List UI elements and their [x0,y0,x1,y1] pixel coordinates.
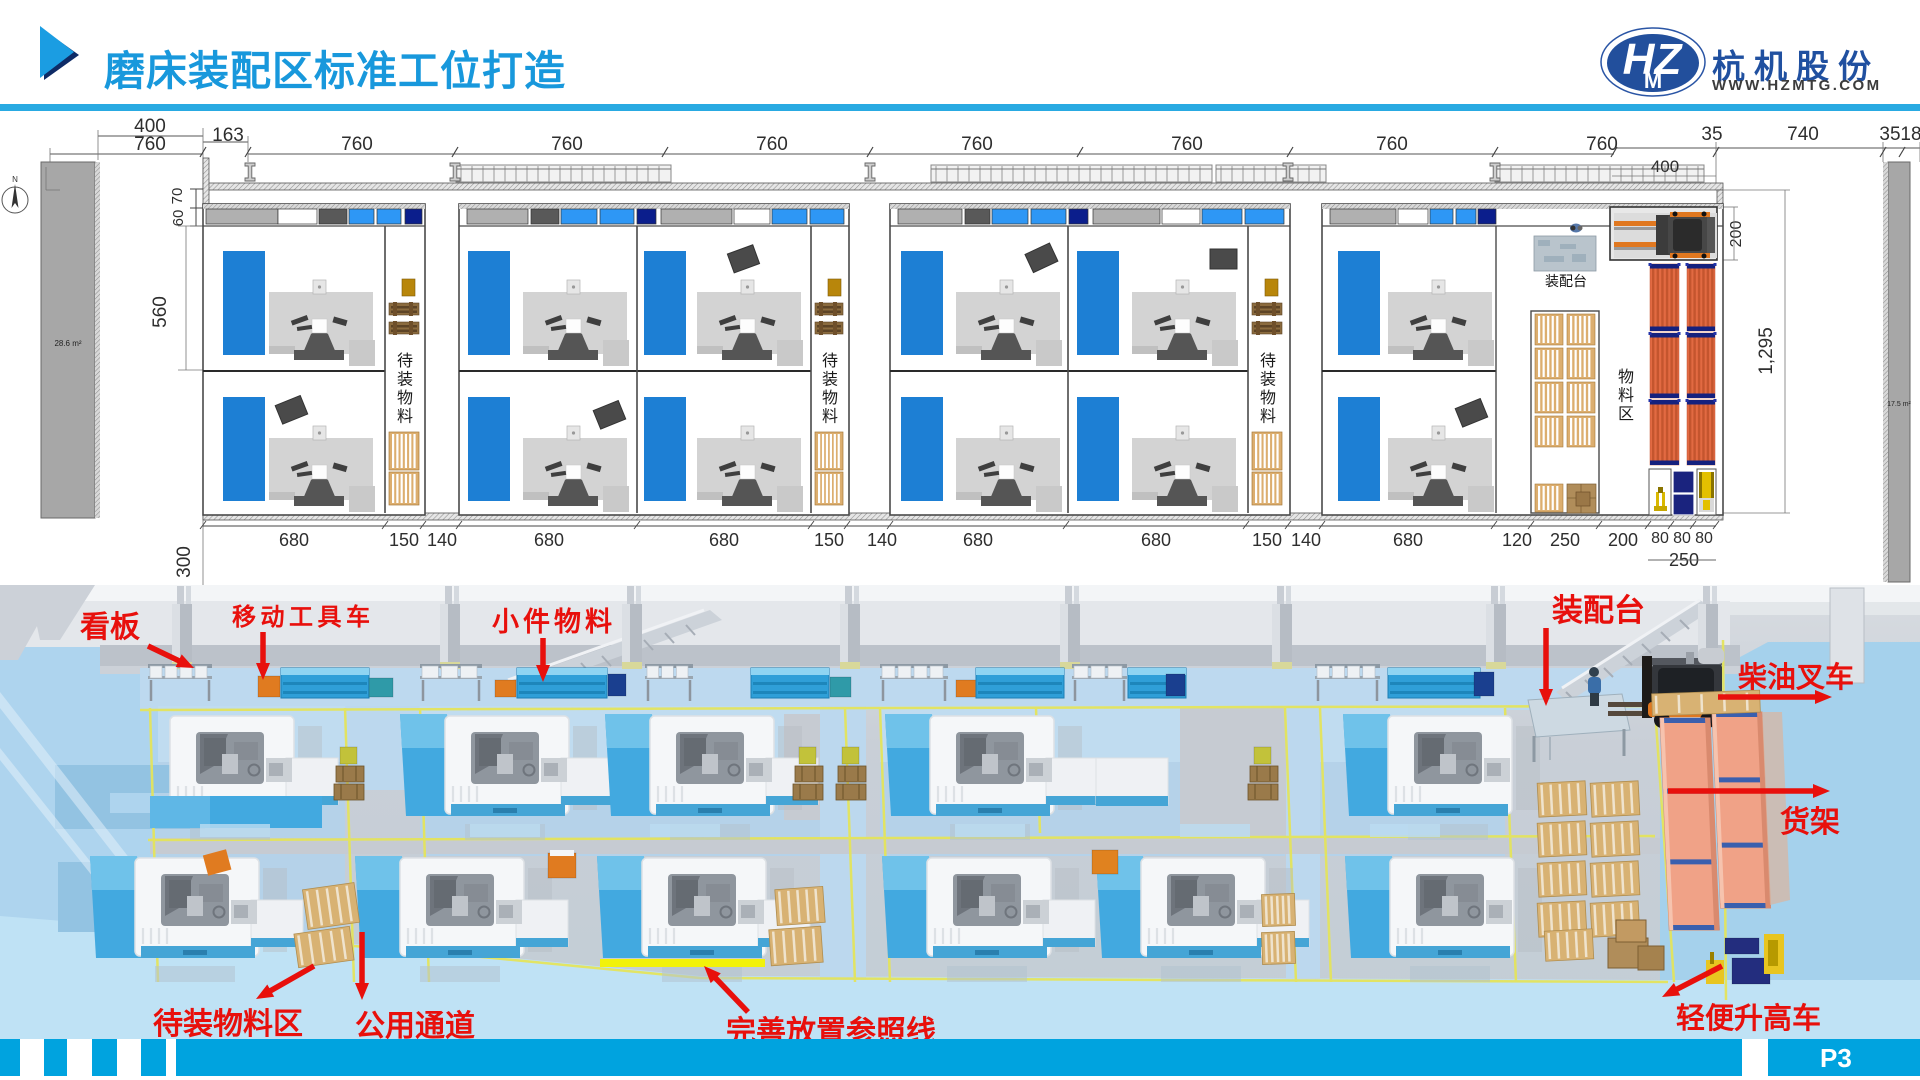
svg-text:760: 760 [961,134,993,155]
svg-text:680: 680 [1393,530,1423,550]
svg-text:待: 待 [1260,352,1276,370]
svg-text:物: 物 [1260,389,1276,407]
svg-text:80: 80 [1695,530,1713,547]
svg-text:物: 物 [1618,368,1634,386]
svg-text:680: 680 [534,530,564,550]
svg-text:140: 140 [1291,530,1321,550]
svg-text:140: 140 [427,530,457,550]
svg-text:200: 200 [1608,530,1638,550]
svg-text:物: 物 [822,389,838,407]
svg-text:轻便升高车: 轻便升高车 [1676,1001,1821,1035]
svg-text:N: N [12,175,18,184]
svg-text:料: 料 [397,408,413,426]
svg-text:740: 740 [1787,124,1819,145]
svg-text:35: 35 [1879,124,1900,145]
svg-text:560: 560 [150,296,171,328]
svg-text:装: 装 [397,371,413,389]
svg-text:装: 装 [822,371,838,389]
svg-text:760: 760 [1376,134,1408,155]
svg-text:60: 60 [170,210,187,227]
svg-text:装配台: 装配台 [1552,593,1645,628]
svg-text:760: 760 [1586,134,1618,155]
svg-text:28.6 m²: 28.6 m² [54,339,81,348]
svg-text:760: 760 [551,134,583,155]
svg-text:150: 150 [389,530,419,550]
svg-text:料: 料 [1260,408,1276,426]
svg-text:70: 70 [169,188,186,205]
svg-text:35: 35 [1701,124,1722,145]
svg-text:小件物料: 小件物料 [492,607,616,637]
svg-text:待装物料区: 待装物料区 [153,1008,303,1041]
svg-text:移动工具车: 移动工具车 [232,603,375,631]
svg-text:760: 760 [341,134,373,155]
svg-text:400: 400 [1651,157,1679,176]
svg-text:300: 300 [174,546,195,578]
svg-text:料: 料 [822,408,838,426]
svg-text:680: 680 [963,530,993,550]
svg-text:163: 163 [212,125,244,146]
svg-text:柴油叉车: 柴油叉车 [1738,660,1854,694]
svg-text:装: 装 [1260,371,1276,389]
svg-text:140: 140 [867,530,897,550]
svg-text:待: 待 [822,352,838,370]
svg-text:760: 760 [1171,134,1203,155]
svg-text:待: 待 [397,352,413,370]
svg-text:200: 200 [1728,221,1745,248]
svg-text:80: 80 [1651,530,1669,547]
svg-text:料: 料 [1618,387,1634,405]
svg-text:18: 18 [1900,124,1920,145]
svg-text:物: 物 [397,389,413,407]
svg-text:看板: 看板 [80,611,140,644]
svg-text:680: 680 [1141,530,1171,550]
svg-text:80: 80 [1673,530,1691,547]
svg-text:区: 区 [1618,406,1634,423]
svg-text:250: 250 [1550,530,1580,550]
svg-text:680: 680 [279,530,309,550]
svg-text:1,295: 1,295 [1756,327,1777,375]
svg-text:150: 150 [1252,530,1282,550]
svg-text:装配台: 装配台 [1545,273,1587,289]
svg-text:680: 680 [709,530,739,550]
svg-text:760: 760 [134,134,166,155]
svg-text:17.5 m²: 17.5 m² [1887,401,1911,408]
svg-text:货架: 货架 [1780,805,1840,839]
svg-text:120: 120 [1502,530,1532,550]
svg-text:150: 150 [814,530,844,550]
svg-text:760: 760 [756,134,788,155]
